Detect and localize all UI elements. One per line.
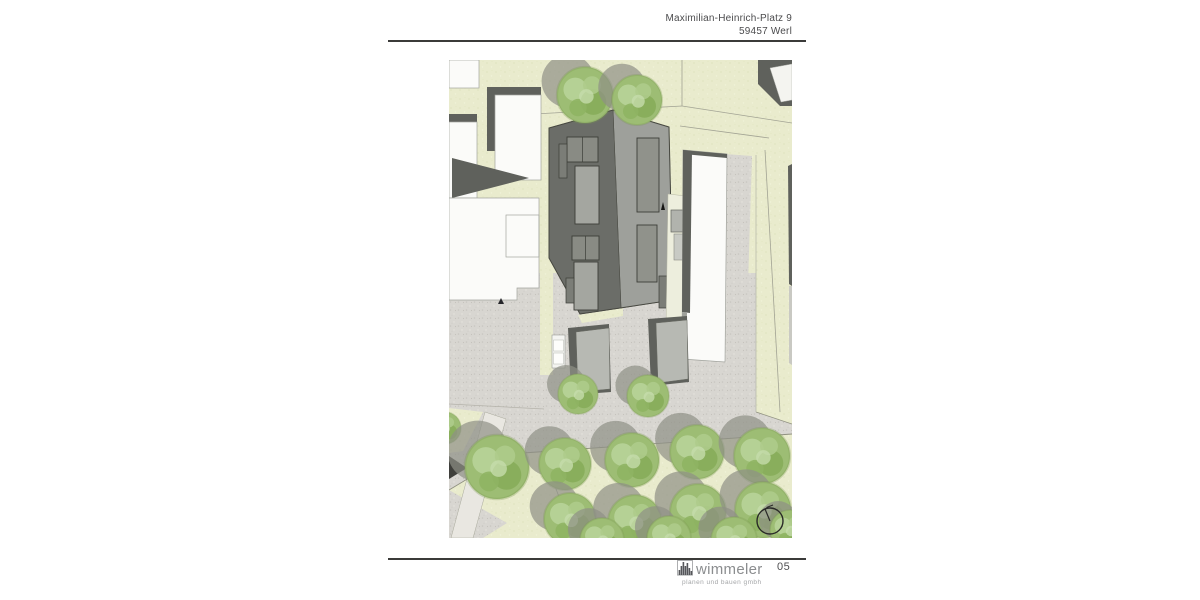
- site-plan: [449, 60, 792, 538]
- brand-tagline: planen und bauen gmbh: [682, 579, 763, 586]
- bar-chart-logo-icon: [677, 560, 693, 578]
- brand-name: wimmeler: [696, 562, 763, 578]
- company-logo: wimmeler planen und bauen gmbh: [677, 560, 763, 586]
- bin-enclosure: [552, 335, 565, 368]
- page-number: 05: [777, 561, 790, 573]
- address-line-2: 59457 Werl: [388, 26, 792, 39]
- header-address: Maximilian-Heinrich-Platz 9 59457 Werl: [388, 13, 792, 38]
- address-line-1: Maximilian-Heinrich-Platz 9: [388, 13, 792, 26]
- site-plan-drawing: [449, 60, 792, 538]
- main-building: [549, 110, 673, 314]
- header-rule: [388, 40, 806, 42]
